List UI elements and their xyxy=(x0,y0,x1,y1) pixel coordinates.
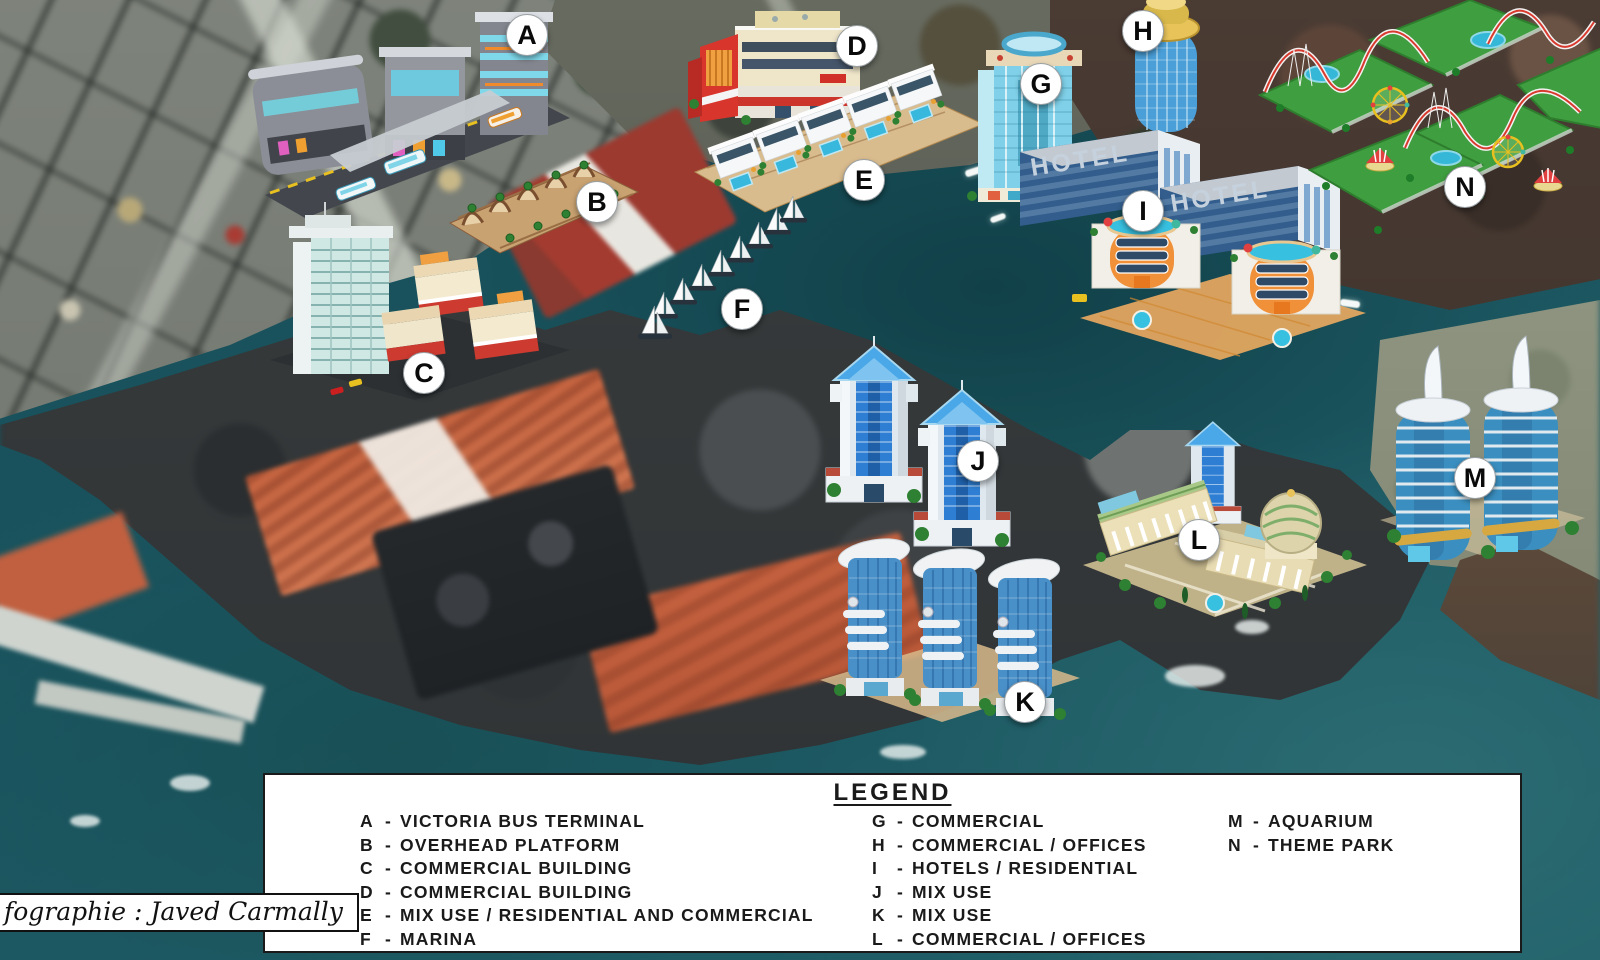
marker-letter: K xyxy=(1015,687,1035,718)
legend-item-m: M-AQUARIUM xyxy=(1228,811,1394,835)
legend-name: MIX USE / RESIDENTIAL AND COMMERCIAL xyxy=(400,905,814,926)
marker-letter: D xyxy=(847,31,867,62)
attribution-credit: fographie : Javed Carmally xyxy=(0,893,359,932)
map-marker-n[interactable]: N xyxy=(1444,166,1486,208)
map-marker-i[interactable]: I xyxy=(1122,190,1164,232)
legend-letter: G xyxy=(872,811,889,832)
legend-name: THEME PARK xyxy=(1268,835,1394,856)
legend-title: LEGEND xyxy=(265,779,1520,807)
legend-item-e: E-MIX USE / RESIDENTIAL AND COMMERCIAL xyxy=(360,905,814,929)
map-marker-a[interactable]: A xyxy=(506,14,548,56)
legend-separator: - xyxy=(897,929,904,950)
wave-foam xyxy=(70,815,100,827)
marker-letter: C xyxy=(414,358,434,389)
legend-name: COMMERCIAL / OFFICES xyxy=(912,835,1147,856)
marker-letter: I xyxy=(1139,196,1147,227)
legend-item-i: I-HOTELS / RESIDENTIAL xyxy=(872,858,1147,882)
building-n-theme-park xyxy=(1250,0,1600,242)
legend-letter: E xyxy=(360,905,377,926)
legend-name: VICTORIA BUS TERMINAL xyxy=(400,811,645,832)
marker-letter: L xyxy=(1191,525,1208,556)
legend-separator: - xyxy=(897,835,904,856)
map-marker-l[interactable]: L xyxy=(1178,519,1220,561)
legend-separator: - xyxy=(1253,835,1260,856)
building-j-mix-use-towers xyxy=(810,322,1025,544)
marker-letter: N xyxy=(1455,172,1475,203)
legend-name: OVERHEAD PLATFORM xyxy=(400,835,620,856)
marker-letter: B xyxy=(587,187,607,218)
legend-letter: N xyxy=(1228,835,1245,856)
map-marker-k[interactable]: K xyxy=(1004,681,1046,723)
wave-foam xyxy=(170,775,210,791)
legend-item-g: G-COMMERCIAL xyxy=(872,811,1147,835)
legend-item-a: A-VICTORIA BUS TERMINAL xyxy=(360,811,814,835)
legend-separator: - xyxy=(897,882,904,903)
legend-separator: - xyxy=(897,858,904,879)
legend-item-f: F-MARINA xyxy=(360,929,814,953)
attribution-text: fographie : Javed Carmally xyxy=(4,897,343,926)
map-marker-m[interactable]: M xyxy=(1454,457,1496,499)
legend-item-d: D-COMMERCIAL BUILDING xyxy=(360,882,814,906)
legend-name: MARINA xyxy=(400,929,477,950)
legend-letter: H xyxy=(872,835,889,856)
legend-letter: A xyxy=(360,811,377,832)
marker-letter: F xyxy=(734,294,751,325)
map-marker-b[interactable]: B xyxy=(576,181,618,223)
legend-letter: J xyxy=(872,882,889,903)
legend-item-k: K-MIX USE xyxy=(872,905,1147,929)
legend-item-j: J-MIX USE xyxy=(872,882,1147,906)
masterplan-map: HOTEL HOTEL xyxy=(0,0,1600,960)
legend-column-1: A-VICTORIA BUS TERMINAL B-OVERHEAD PLATF… xyxy=(360,811,814,952)
marker-letter: G xyxy=(1030,69,1051,100)
legend-name: COMMERCIAL BUILDING xyxy=(400,882,632,903)
legend-letter: L xyxy=(872,929,889,950)
legend-separator: - xyxy=(1253,811,1260,832)
legend-column-2: G-COMMERCIAL H-COMMERCIAL / OFFICES I-HO… xyxy=(872,811,1147,952)
map-marker-h[interactable]: H xyxy=(1122,10,1164,52)
legend-letter: M xyxy=(1228,811,1245,832)
map-marker-g[interactable]: G xyxy=(1020,63,1062,105)
legend-separator: - xyxy=(385,811,392,832)
legend-name: MIX USE xyxy=(912,905,992,926)
building-m-aquarium xyxy=(1380,340,1585,562)
legend-name: MIX USE xyxy=(912,882,992,903)
legend-item-n: N-THEME PARK xyxy=(1228,835,1394,859)
legend-letter: D xyxy=(360,882,377,903)
map-marker-j[interactable]: J xyxy=(957,440,999,482)
building-l-commercial-offices xyxy=(1065,415,1375,643)
legend-name: AQUARIUM xyxy=(1268,811,1374,832)
legend-separator: - xyxy=(897,811,904,832)
legend-item-h: H-COMMERCIAL / OFFICES xyxy=(872,835,1147,859)
legend-panel: LEGEND A-VICTORIA BUS TERMINAL B-OVERHEA… xyxy=(263,773,1522,953)
marker-letter: M xyxy=(1464,463,1487,494)
legend-name: COMMERCIAL xyxy=(912,811,1045,832)
wave-foam xyxy=(880,745,926,759)
map-marker-f[interactable]: F xyxy=(721,288,763,330)
legend-separator: - xyxy=(385,882,392,903)
legend-name: COMMERCIAL BUILDING xyxy=(400,858,632,879)
legend-letter: I xyxy=(872,858,889,879)
marker-letter: E xyxy=(855,165,873,196)
legend-item-c: C-COMMERCIAL BUILDING xyxy=(360,858,814,882)
legend-column-3: M-AQUARIUM N-THEME PARK xyxy=(1228,811,1394,858)
marker-letter: A xyxy=(517,20,537,51)
legend-letter: K xyxy=(872,905,889,926)
carousel-icon xyxy=(1534,168,1562,191)
legend-item-b: B-OVERHEAD PLATFORM xyxy=(360,835,814,859)
legend-separator: - xyxy=(385,835,392,856)
legend-letter: B xyxy=(360,835,377,856)
map-marker-d[interactable]: D xyxy=(836,25,878,67)
legend-separator: - xyxy=(385,929,392,950)
legend-letter: F xyxy=(360,929,377,950)
legend-name: HOTELS / RESIDENTIAL xyxy=(912,858,1138,879)
legend-letter: C xyxy=(360,858,377,879)
marker-letter: J xyxy=(970,446,985,477)
legend-separator: - xyxy=(385,905,392,926)
legend-separator: - xyxy=(385,858,392,879)
wave-foam xyxy=(1165,665,1225,687)
legend-separator: - xyxy=(897,905,904,926)
marker-letter: H xyxy=(1133,16,1153,47)
map-marker-e[interactable]: E xyxy=(843,159,885,201)
map-marker-c[interactable]: C xyxy=(403,352,445,394)
legend-name: COMMERCIAL / OFFICES xyxy=(912,929,1147,950)
legend-item-l: L-COMMERCIAL / OFFICES xyxy=(872,929,1147,953)
